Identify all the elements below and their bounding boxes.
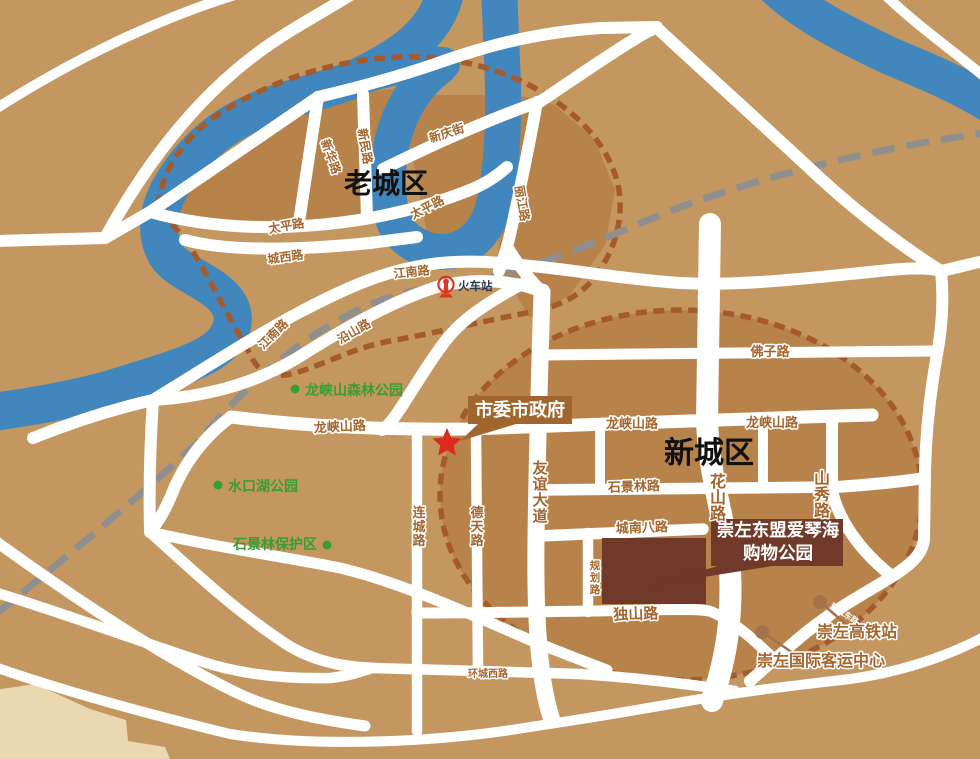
svg-text:连城路: 连城路 [412,505,426,548]
svg-text:火车站: 火车站 [458,279,493,293]
svg-text:崇左高铁站: 崇左高铁站 [817,622,897,641]
svg-text:市委市政府: 市委市政府 [475,399,565,420]
svg-text:山秀路: 山秀路 [813,470,831,520]
svg-text:崇左东盟爱琴海: 崇左东盟爱琴海 [717,520,840,540]
svg-text:友谊大道: 友谊大道 [532,459,547,525]
svg-text:花山路: 花山路 [710,472,727,523]
svg-text:新城区: 新城区 [664,437,754,470]
svg-text:龙峡山森林公园: 龙峡山森林公园 [304,382,403,398]
svg-text:规划路: 规划路 [590,559,601,596]
svg-text:独山路: 独山路 [613,604,660,624]
svg-text:城南八路: 城南八路 [616,519,669,536]
svg-text:德天路: 德天路 [470,505,484,548]
svg-text:佛子路: 佛子路 [749,344,790,359]
svg-text:环城西路: 环城西路 [468,667,509,680]
svg-text:石景林保护区: 石景林保护区 [232,536,317,552]
svg-text:龙峡山路: 龙峡山路 [606,416,659,431]
svg-text:龙峡山路: 龙峡山路 [313,418,367,436]
svg-text:购物公园: 购物公园 [743,543,813,563]
svg-text:石景林路: 石景林路 [607,478,661,495]
svg-text:老城区: 老城区 [344,168,428,199]
svg-text:水口湖公园: 水口湖公园 [228,478,298,494]
svg-text:崇左国际客运中心: 崇左国际客运中心 [757,651,885,670]
svg-text:龙峡山路: 龙峡山路 [746,415,799,430]
